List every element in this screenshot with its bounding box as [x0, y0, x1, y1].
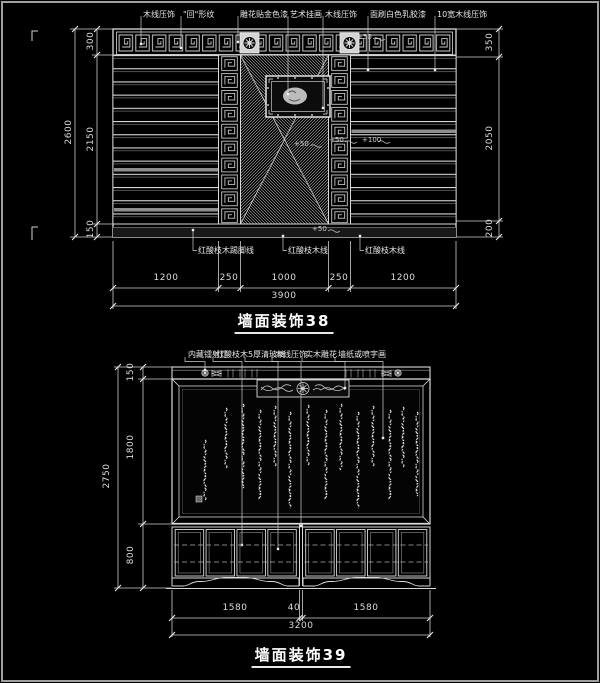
dim-label-vertical: 2600	[64, 110, 74, 154]
annotation-label: +100	[362, 136, 381, 144]
dim-label: 1580	[336, 603, 396, 613]
d38-bottom-label: 红酸枝木踢脚线	[198, 245, 254, 256]
dim-label-vertical: 2050	[485, 116, 495, 160]
d38-top-label: 雕花贴金色漆	[240, 9, 288, 20]
cad-linework	[0, 0, 600, 683]
d39-top-label: 红酸枝木	[216, 349, 248, 360]
carved-ornament	[257, 380, 349, 397]
dim-label-vertical: 300	[86, 19, 96, 63]
annotation-label: +50	[357, 33, 372, 41]
dim-label: 3900	[254, 291, 314, 301]
seal-mark	[196, 496, 202, 502]
dim-label-vertical: 150	[126, 350, 136, 394]
annotation-label: +50	[294, 140, 309, 148]
dim-label-vertical: 2750	[102, 454, 112, 498]
d38-top-label: 木线压饰	[325, 9, 357, 20]
dim-label: 250	[309, 273, 369, 283]
art-picture	[266, 76, 330, 117]
d38-bottom-label: 红酸枝木线	[365, 245, 405, 256]
dim-label-vertical: 150	[86, 207, 96, 251]
drawing-title: 墙面装饰38	[235, 310, 334, 334]
d38-top-label: 木线压饰	[143, 9, 175, 20]
d39-top-label: 木线压饰	[275, 349, 307, 360]
d38-top-label: 10宽木线压饰	[437, 9, 487, 20]
dim-label-vertical: 350	[485, 20, 495, 64]
dim-label: 40	[264, 603, 324, 613]
d38-bottom-label: 红酸枝木线	[288, 245, 328, 256]
d39-top-label: 实木雕花	[305, 349, 337, 360]
cad-viewport: 木线压饰 "回"形纹 雕花贴金色漆 艺术挂画 木线压饰 面刷白色乳胶漆 10宽木…	[0, 0, 600, 683]
d39-top-label: 墙纸或喷字画	[338, 349, 386, 360]
d38-top-label: "回"形纹	[183, 9, 214, 20]
dim-label: 1000	[254, 273, 314, 283]
dim-label: 3200	[271, 621, 331, 631]
d38-top-label: 面刷白色乳胶漆	[370, 9, 426, 20]
d38-top-label: 艺术挂画	[290, 9, 322, 20]
dim-label-vertical: 1800	[126, 425, 136, 469]
dim-label-vertical: 800	[126, 533, 136, 577]
dim-label-vertical: 200	[485, 206, 495, 250]
annotation-label: +50	[329, 136, 344, 144]
dim-label: 1200	[373, 273, 433, 283]
dim-label: 250	[199, 273, 259, 283]
dim-label: 1200	[136, 273, 196, 283]
dim-label: 1580	[205, 603, 265, 613]
annotation-label: +50	[312, 225, 327, 233]
drawing-title: 墙面装饰39	[252, 644, 351, 668]
dim-label-vertical: 2150	[86, 117, 96, 161]
